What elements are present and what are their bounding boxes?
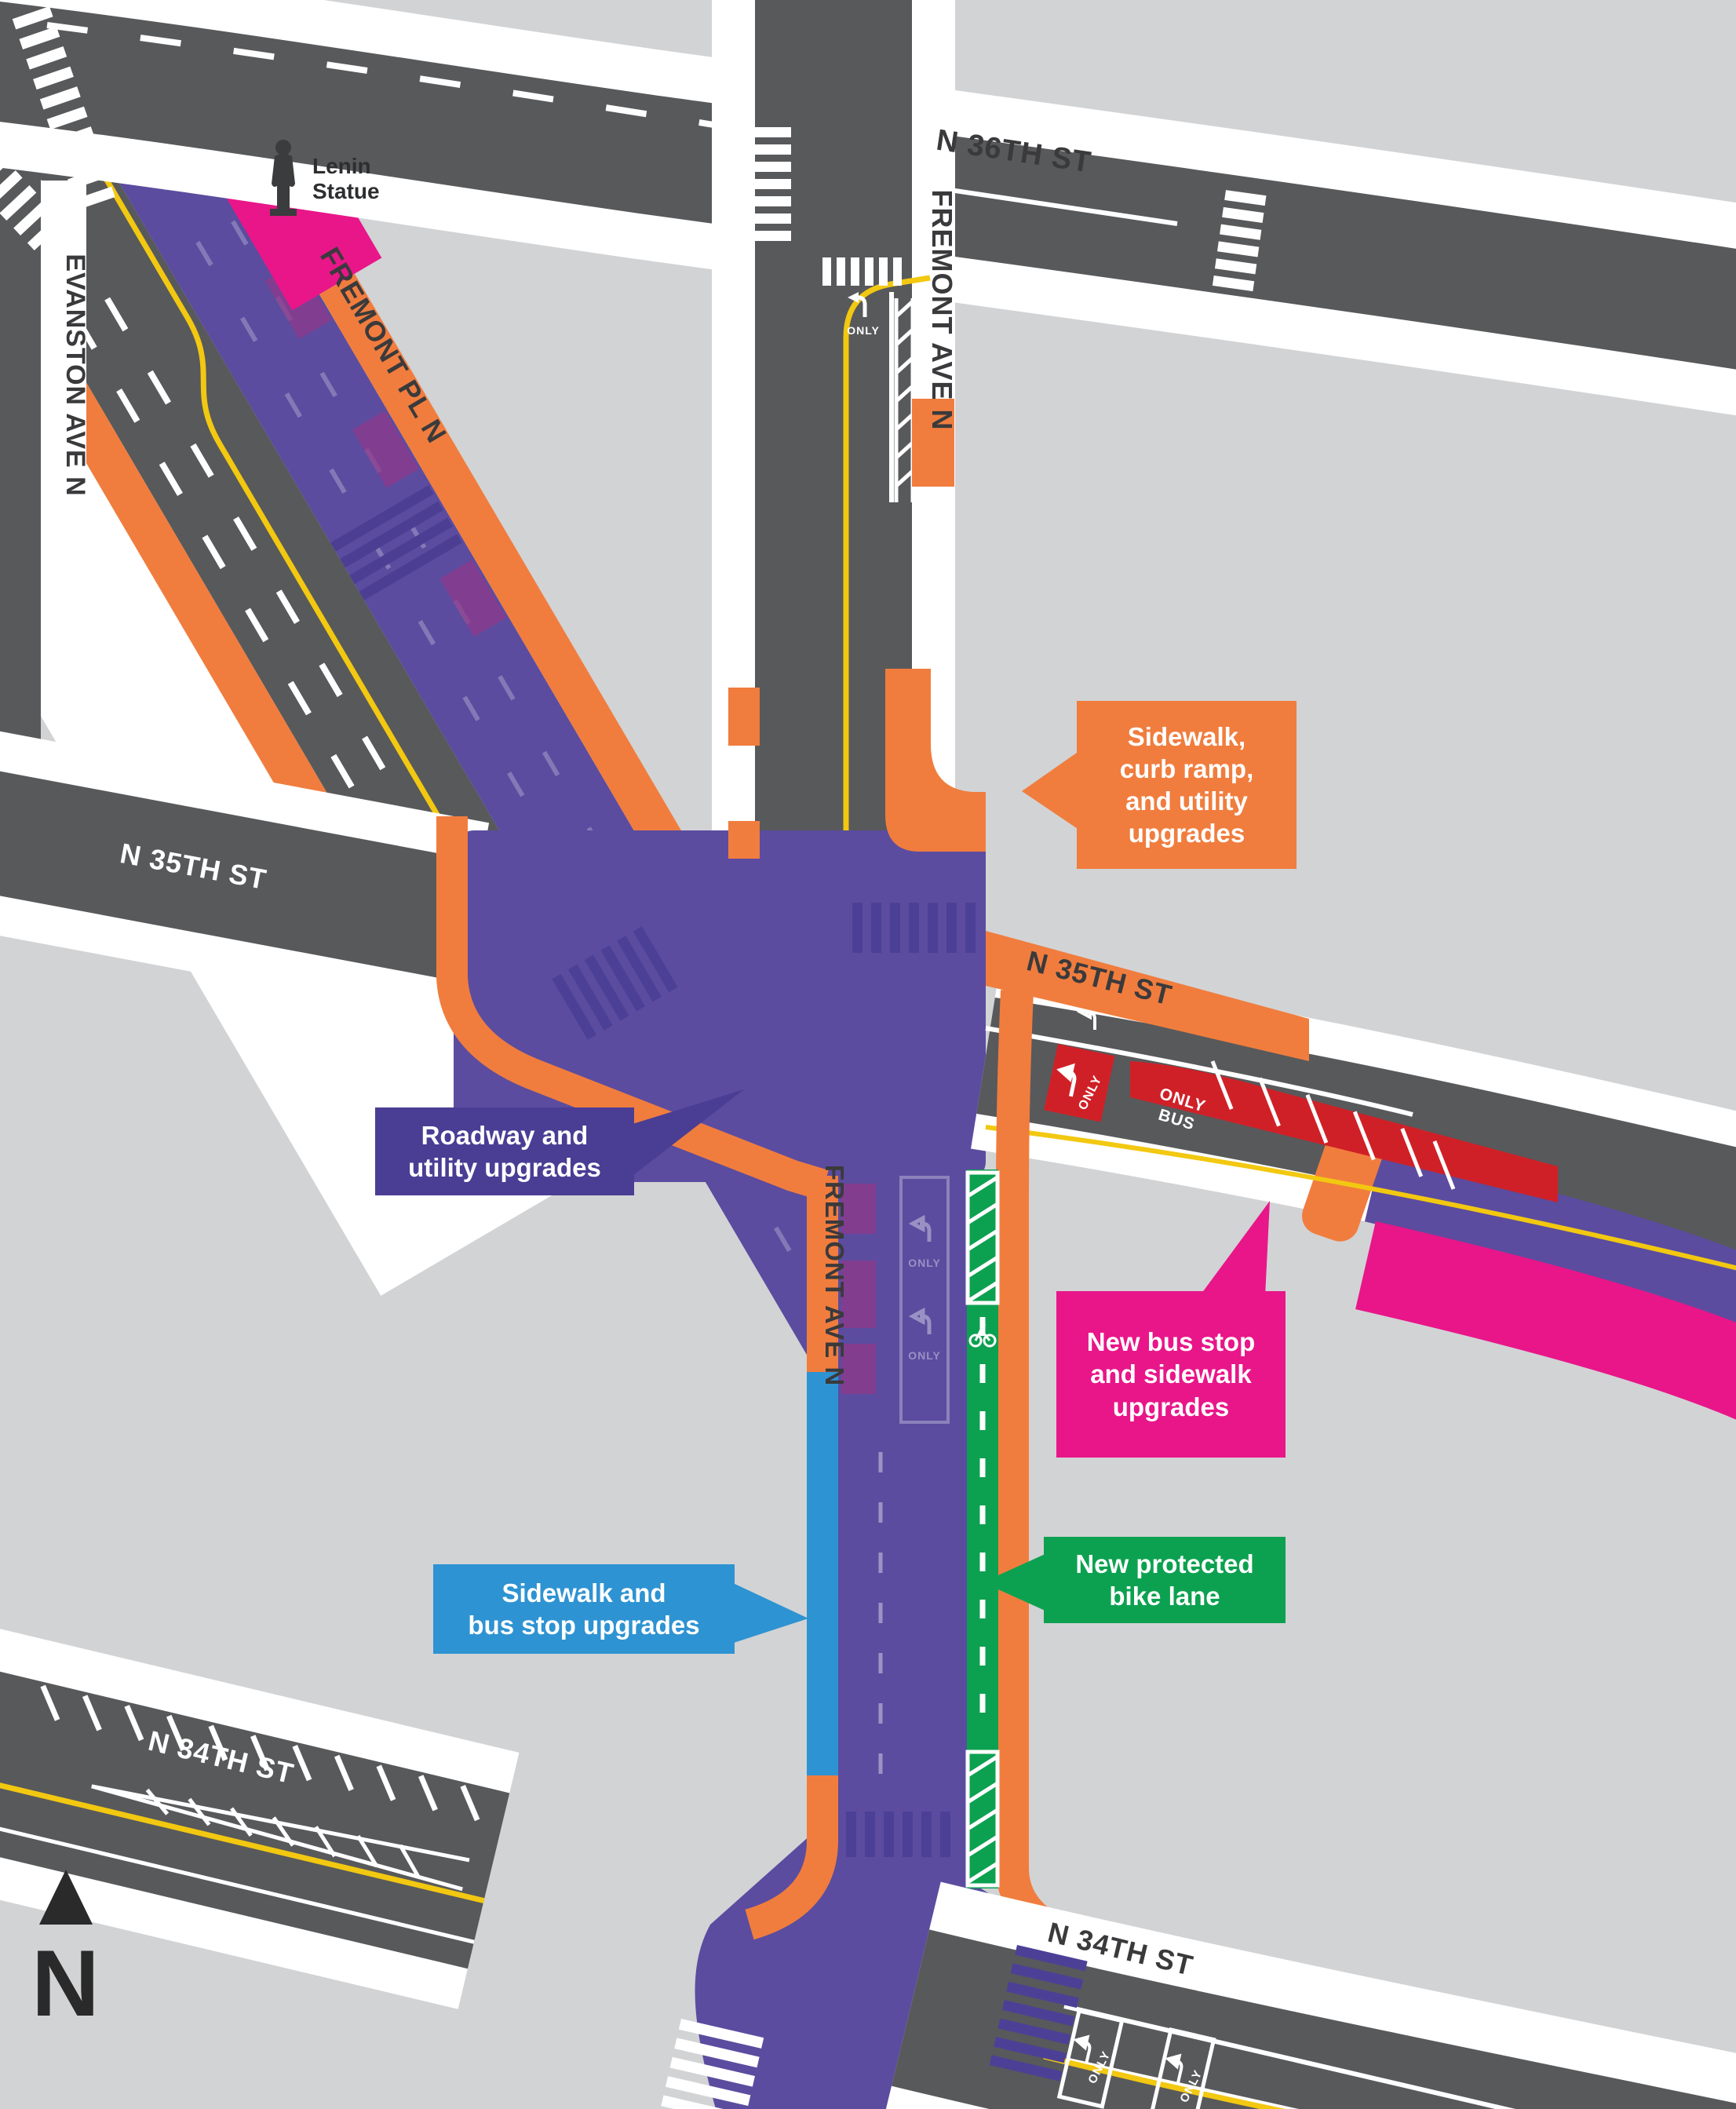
fremont-ave-south-label: FREMONT AVE N xyxy=(820,1165,849,1387)
north-arrow-label: N xyxy=(31,1931,100,2036)
sidewalk-bus-stop-blue-strip xyxy=(807,1372,838,1775)
callout-new-protected-bike-lane: New protected bike lane xyxy=(1044,1537,1286,1623)
evanston-label: EVANSTON AVE N xyxy=(60,254,90,496)
fremont-ave-north-label: FREMONT AVE N xyxy=(926,190,958,431)
sidewalk-upgrade-patch xyxy=(728,688,760,746)
callout-roadway-utility: Roadway and utility upgrades xyxy=(375,1107,634,1195)
street-map-canvas: ONLY N 35TH ST xyxy=(0,0,1736,2109)
lenin-statue-label: Lenin Statue xyxy=(312,154,380,204)
svg-text:ONLY: ONLY xyxy=(908,1349,941,1362)
svg-text:ONLY: ONLY xyxy=(908,1257,941,1269)
callout-sidewalk-curb-ramp-utility: Sidewalk, curb ramp, and utility upgrade… xyxy=(1077,701,1297,869)
sidewalk-upgrade-patch xyxy=(728,821,760,859)
svg-text:ONLY: ONLY xyxy=(847,324,880,337)
callout-new-bus-stop-sidewalk: New bus stop and sidewalk upgrades xyxy=(1056,1291,1286,1458)
project-map-page: { "map": { "title": "Fremont paving and … xyxy=(0,0,1736,2109)
callout-sidewalk-bus-stop: Sidewalk and bus stop upgrades xyxy=(433,1564,735,1654)
protected-bike-lane xyxy=(967,1169,998,1888)
